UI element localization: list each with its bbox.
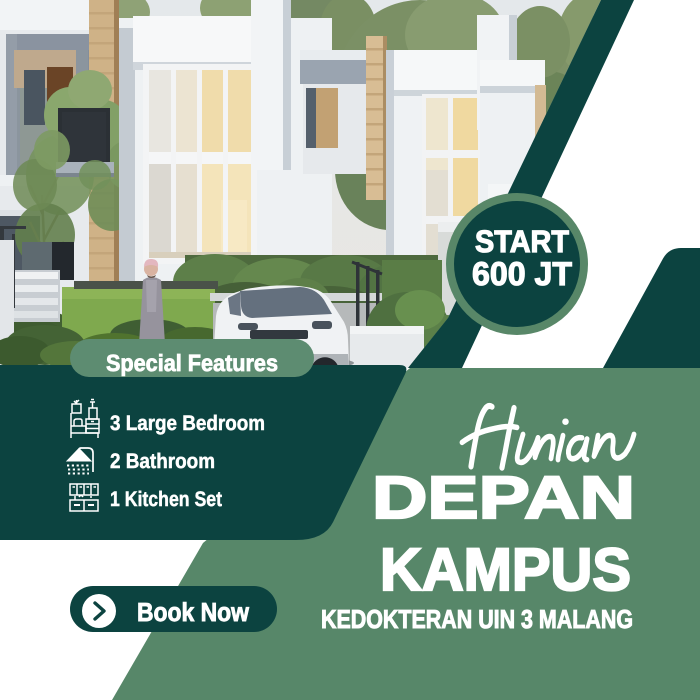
svg-text:600 JT: 600 JT [472, 255, 572, 292]
svg-text:Book Now: Book Now [137, 597, 250, 627]
svg-text:1 Kitchen Set: 1 Kitchen Set [110, 488, 222, 511]
svg-text:DEPAN: DEPAN [372, 464, 635, 531]
svg-text:2 Bathroom: 2 Bathroom [110, 450, 215, 473]
svg-text:KAMPUS: KAMPUS [380, 536, 631, 603]
svg-text:3 Large Bedroom: 3 Large Bedroom [110, 412, 265, 435]
svg-text:Special Features: Special Features [106, 350, 278, 376]
svg-text:KEDOKTERAN UIN 3 MALANG: KEDOKTERAN UIN 3 MALANG [321, 604, 633, 634]
svg-text:START: START [475, 224, 569, 259]
